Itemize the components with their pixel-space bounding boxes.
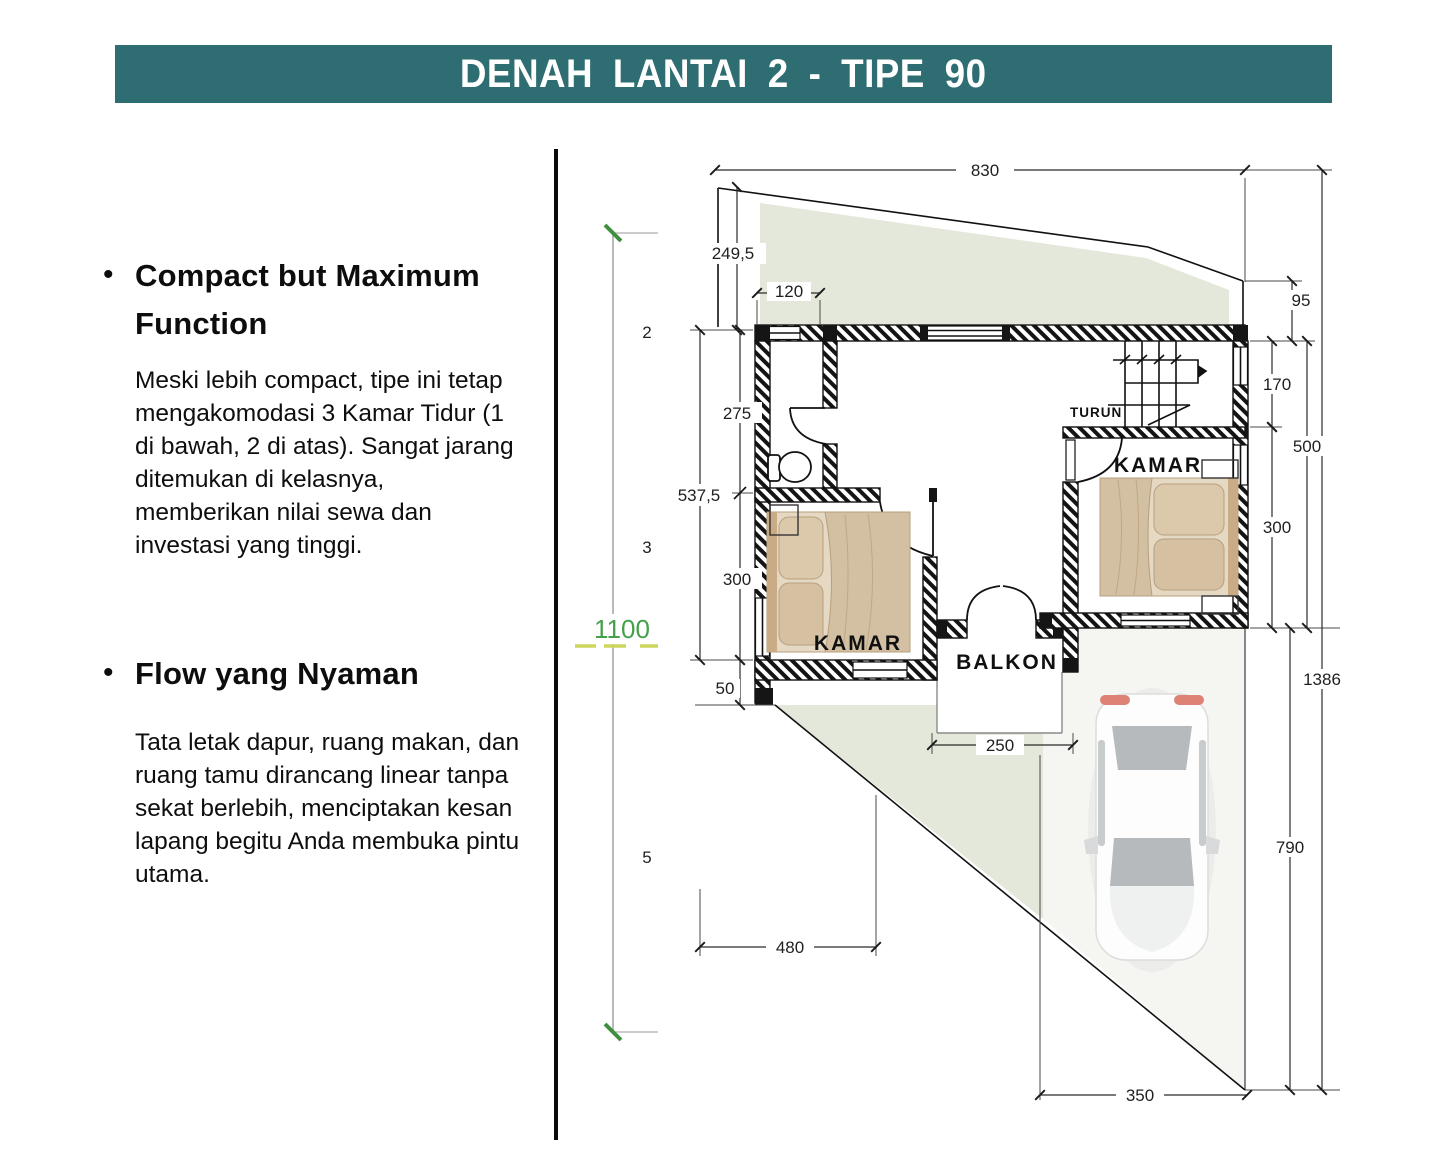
stair-arrow-icon	[1198, 366, 1206, 377]
bed-right	[1100, 460, 1238, 614]
dim-350: 350	[1126, 1086, 1154, 1105]
rear-window	[1112, 726, 1192, 770]
window-top	[926, 326, 1004, 340]
dim-790: 790	[1276, 838, 1304, 857]
dim-275: 275	[723, 404, 751, 423]
tail-light-right	[1174, 695, 1204, 705]
roof-garden-area	[718, 188, 1243, 330]
balkon-french-door	[967, 586, 1036, 620]
windshield	[1110, 838, 1194, 886]
dim-500: 500	[1293, 437, 1321, 456]
bathroom-door	[790, 408, 826, 444]
kamar-left-label: KAMAR	[814, 632, 902, 655]
dim-1100: 1100	[594, 614, 650, 644]
toilet-icon	[768, 452, 811, 482]
dim-300-left: 300	[723, 570, 751, 589]
dim-250: 250	[986, 736, 1014, 755]
page: DENAH LANTAI 2 - TIPE 90 • Compact but M…	[0, 0, 1440, 1170]
floor-plan: KAMAR KAMAR BALKON TURUN	[0, 0, 1440, 1170]
dim-480: 480	[776, 938, 804, 957]
dim-partial-5: 5	[642, 848, 651, 867]
balkon-label: BALKON	[956, 651, 1058, 674]
dim-300-right: 300	[1263, 518, 1291, 537]
stairs	[1108, 341, 1206, 427]
kamar-right-label: KAMAR	[1114, 454, 1202, 477]
tail-light-left	[1100, 695, 1130, 705]
dim-537-5: 537,5	[678, 486, 721, 505]
dim-partial-3: 3	[642, 538, 651, 557]
dim-249-5: 249,5	[712, 244, 755, 263]
dim-830: 830	[971, 161, 999, 180]
dim-95: 95	[1292, 291, 1311, 310]
turun-label: TURUN	[1070, 405, 1122, 420]
dim-50: 50	[716, 679, 735, 698]
dim-1386: 1386	[1303, 670, 1341, 689]
dim-120: 120	[775, 282, 803, 301]
dim-partial-2: 2	[642, 323, 651, 342]
bed-left	[767, 505, 910, 652]
car-top-view	[1084, 688, 1220, 972]
dim-170: 170	[1263, 375, 1291, 394]
